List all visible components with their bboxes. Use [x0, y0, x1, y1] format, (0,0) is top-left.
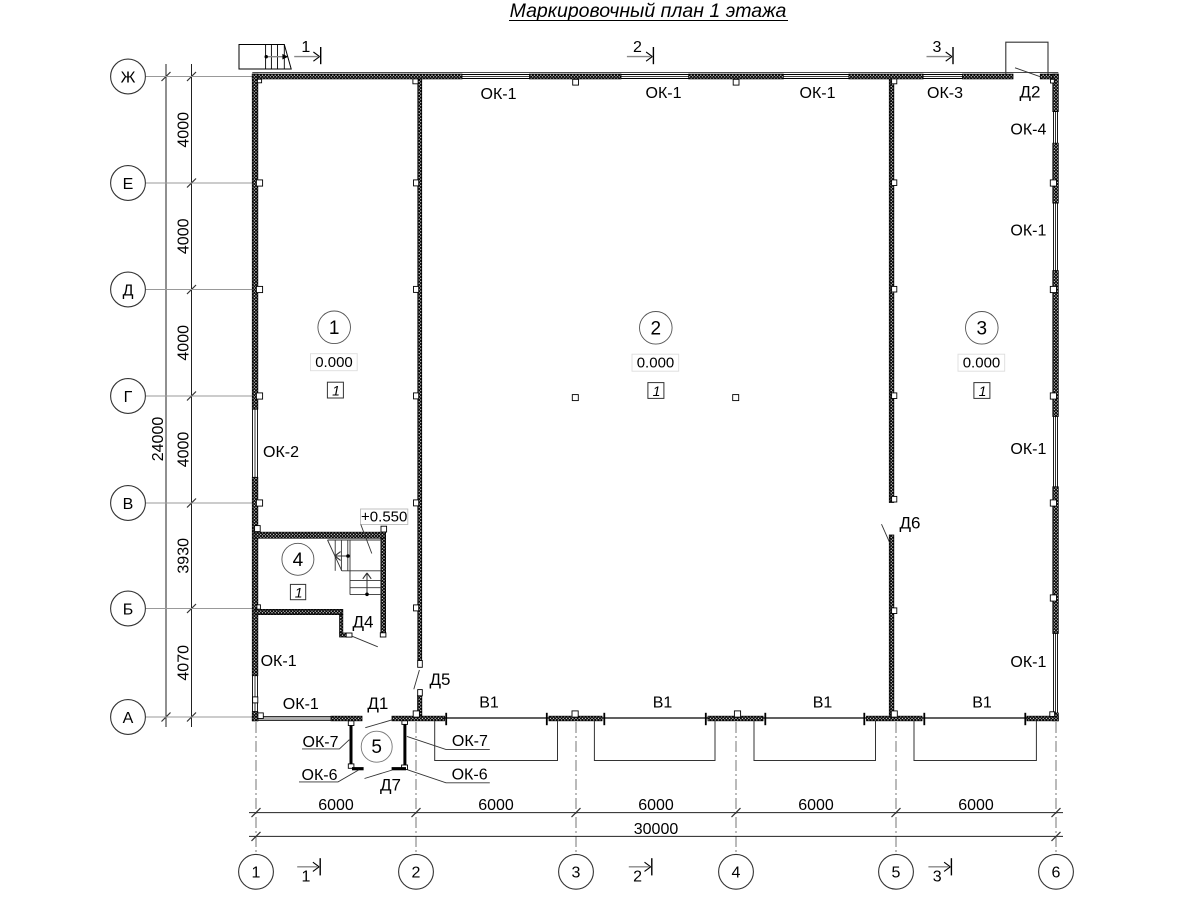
svg-text:Е: Е [123, 176, 134, 193]
svg-text:2: 2 [651, 318, 662, 339]
svg-text:В1: В1 [813, 694, 833, 711]
svg-text:В: В [123, 496, 134, 513]
svg-text:Д6: Д6 [900, 513, 921, 532]
svg-text:Ж: Ж [121, 69, 136, 86]
svg-text:6000: 6000 [638, 797, 674, 814]
svg-text:Б: Б [123, 601, 134, 618]
svg-text:Д: Д [123, 282, 134, 299]
svg-text:30000: 30000 [634, 821, 679, 838]
svg-text:ОК-1: ОК-1 [1010, 223, 1046, 240]
svg-text:3: 3 [933, 39, 942, 56]
svg-text:ОК-1: ОК-1 [646, 85, 682, 102]
svg-text:Г: Г [124, 389, 133, 406]
svg-text:1: 1 [332, 382, 340, 398]
svg-text:3: 3 [933, 869, 942, 886]
svg-text:А: А [123, 710, 134, 727]
svg-text:6000: 6000 [958, 797, 994, 814]
svg-text:1: 1 [252, 865, 261, 882]
svg-text:2: 2 [633, 39, 642, 56]
svg-text:Д1: Д1 [367, 694, 388, 713]
svg-text:ОК-1: ОК-1 [1010, 441, 1046, 458]
svg-text:ОК-1: ОК-1 [481, 86, 517, 103]
svg-text:1: 1 [979, 383, 987, 399]
svg-text:ОК-1: ОК-1 [261, 653, 297, 670]
svg-text:4070: 4070 [176, 645, 193, 681]
svg-text:В1: В1 [653, 694, 673, 711]
svg-text:3930: 3930 [176, 538, 193, 574]
svg-text:ОК-1: ОК-1 [800, 85, 836, 102]
svg-text:6000: 6000 [478, 797, 514, 814]
svg-text:6000: 6000 [798, 797, 834, 814]
svg-text:0.000: 0.000 [315, 354, 353, 371]
svg-text:3: 3 [977, 318, 988, 339]
svg-text:0.000: 0.000 [963, 355, 1001, 372]
svg-text:Д2: Д2 [1020, 83, 1041, 102]
svg-text:1: 1 [302, 869, 311, 886]
svg-text:4000: 4000 [176, 432, 193, 468]
svg-text:Маркировочный план 1 этажа: Маркировочный план 1 этажа [510, 0, 787, 22]
svg-text:1: 1 [301, 39, 310, 56]
svg-text:Д7: Д7 [380, 775, 401, 794]
svg-text:+0.550: +0.550 [361, 508, 407, 525]
svg-text:4000: 4000 [176, 325, 193, 361]
svg-text:Д4: Д4 [353, 612, 374, 631]
svg-text:В1: В1 [972, 694, 992, 711]
svg-text:5: 5 [892, 865, 901, 882]
svg-text:ОК-6: ОК-6 [452, 766, 488, 783]
svg-text:24000: 24000 [150, 417, 167, 462]
svg-text:В1: В1 [479, 694, 499, 711]
svg-text:ОК-7: ОК-7 [452, 733, 488, 750]
svg-text:ОК-3: ОК-3 [927, 85, 963, 102]
svg-text:ОК-1: ОК-1 [1010, 654, 1046, 671]
svg-text:ОК-1: ОК-1 [283, 696, 319, 713]
svg-text:ОК-7: ОК-7 [303, 734, 339, 751]
svg-text:1: 1 [329, 318, 340, 339]
svg-text:4000: 4000 [176, 112, 193, 148]
svg-text:0.000: 0.000 [637, 355, 675, 372]
svg-text:4000: 4000 [176, 218, 193, 254]
svg-text:6000: 6000 [318, 797, 354, 814]
svg-text:1: 1 [653, 383, 661, 399]
svg-text:2: 2 [633, 869, 642, 886]
svg-text:4: 4 [732, 865, 741, 882]
svg-text:2: 2 [412, 865, 421, 882]
svg-text:Д5: Д5 [430, 670, 451, 689]
svg-text:ОК-2: ОК-2 [263, 444, 299, 461]
svg-text:5: 5 [371, 737, 382, 758]
svg-text:6: 6 [1052, 865, 1061, 882]
svg-text:3: 3 [572, 865, 581, 882]
svg-text:4: 4 [293, 550, 304, 571]
svg-text:ОК-4: ОК-4 [1010, 122, 1046, 139]
svg-text:1: 1 [295, 584, 303, 600]
